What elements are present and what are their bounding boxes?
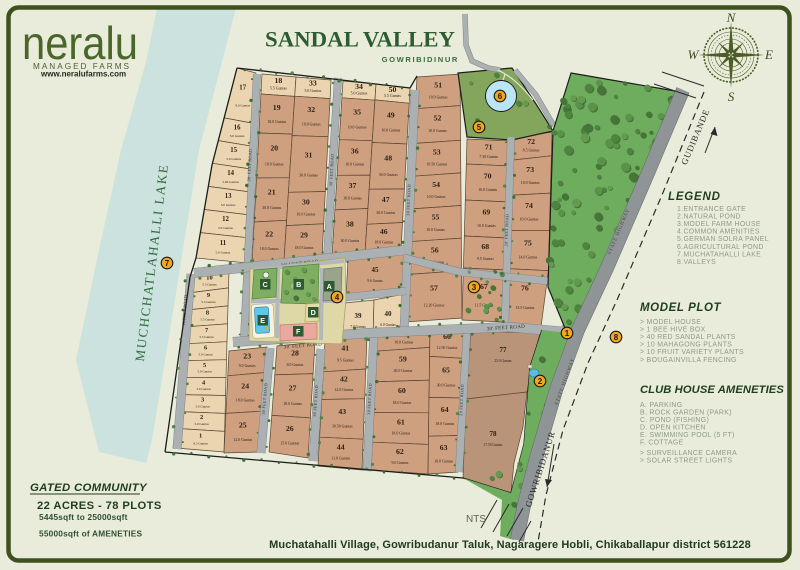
svg-text:75: 75	[524, 238, 532, 247]
svg-text:SANDAL VALLEY: SANDAL VALLEY	[265, 27, 455, 52]
svg-text:46: 46	[380, 227, 388, 236]
svg-text:E: E	[260, 316, 265, 325]
svg-text:64: 64	[441, 405, 449, 414]
svg-text:Muchatahalli Village, Gowribud: Muchatahalli Village, Gowribudanur Taluk…	[269, 539, 751, 551]
svg-text:34: 34	[355, 82, 363, 91]
svg-text:13.5 Guntas: 13.5 Guntas	[515, 306, 534, 310]
svg-text:10.0 Guntas: 10.0 Guntas	[427, 195, 446, 199]
svg-text:13: 13	[225, 193, 232, 200]
svg-text:26: 26	[286, 424, 294, 433]
svg-text:C. POND (FISHING): C. POND (FISHING)	[640, 417, 709, 424]
svg-text:18.50 Guntas: 18.50 Guntas	[426, 162, 447, 166]
svg-text:> 10 MAHAGONG PLANTS: > 10 MAHAGONG PLANTS	[640, 342, 732, 349]
svg-text:3.MODEL FARM HOUSE: 3.MODEL FARM HOUSE	[677, 221, 761, 228]
svg-text:37: 37	[349, 181, 357, 190]
svg-text:W: W	[688, 47, 700, 62]
svg-text:5.0 Guntas: 5.0 Guntas	[226, 157, 241, 161]
svg-text:5445sqft to 25000sqft: 5445sqft to 25000sqft	[39, 512, 128, 522]
svg-text:30.0 Guntas: 30.0 Guntas	[379, 173, 398, 177]
svg-text:24: 24	[241, 382, 249, 391]
svg-text:N: N	[726, 10, 737, 25]
svg-text:5.0 Guntas: 5.0 Guntas	[218, 226, 233, 230]
svg-text:29: 29	[300, 231, 308, 240]
svg-text:2: 2	[538, 377, 543, 386]
svg-text:6.5 Guntas: 6.5 Guntas	[193, 441, 208, 445]
svg-text:5.0 Guntas: 5.0 Guntas	[351, 91, 368, 95]
svg-text:44: 44	[337, 443, 345, 452]
svg-text:3: 3	[472, 283, 477, 292]
svg-text:5.0 Guntas: 5.0 Guntas	[216, 250, 231, 254]
svg-text:2: 2	[200, 414, 203, 421]
svg-text:72: 72	[527, 137, 535, 146]
svg-text:5.0 Guntas: 5.0 Guntas	[221, 203, 236, 207]
svg-text:> SOLAR STREET LIGHTS: > SOLAR STREET LIGHTS	[640, 458, 732, 465]
svg-text:6.AGRICULTURAL POND: 6.AGRICULTURAL POND	[677, 244, 764, 251]
svg-text:49: 49	[387, 110, 395, 119]
svg-text:18.0 Guntas: 18.0 Guntas	[374, 241, 393, 245]
svg-text:55: 55	[432, 213, 440, 222]
svg-text:10.0 Guntas: 10.0 Guntas	[477, 224, 496, 228]
svg-text:5.0 Guntas: 5.0 Guntas	[304, 89, 321, 93]
svg-text:8.0 Guntas: 8.0 Guntas	[287, 363, 304, 367]
svg-text:E: E	[764, 47, 773, 62]
svg-text:42: 42	[340, 374, 348, 383]
svg-text:18.0 Guntas: 18.0 Guntas	[343, 197, 362, 201]
svg-text:5.0 Guntas: 5.0 Guntas	[197, 370, 212, 374]
svg-text:10.0 Guntas: 10.0 Guntas	[302, 122, 321, 126]
svg-text:4: 4	[335, 293, 340, 302]
svg-text:9.6 Guntas: 9.6 Guntas	[367, 279, 383, 283]
svg-text:10.0 Guntas: 10.0 Guntas	[520, 217, 539, 221]
svg-text:9: 9	[207, 292, 210, 299]
svg-text:11.0 Guntas: 11.0 Guntas	[331, 457, 350, 461]
svg-text:9.5 Guntas: 9.5 Guntas	[477, 257, 494, 261]
svg-text:GOWRIBIDINUR: GOWRIBIDINUR	[382, 55, 459, 64]
svg-text:25.0 Guntas: 25.0 Guntas	[494, 359, 512, 363]
svg-text:MODEL PLOT: MODEL PLOT	[640, 302, 722, 314]
svg-text:5.00 Guntas: 5.00 Guntas	[222, 180, 239, 184]
svg-text:7.30 Guntas: 7.30 Guntas	[479, 155, 498, 159]
svg-text:71: 71	[485, 143, 493, 152]
svg-text:10.0 Guntas: 10.0 Guntas	[428, 129, 447, 133]
svg-text:62: 62	[396, 447, 404, 456]
svg-text:B: B	[296, 280, 301, 289]
svg-text:2.NATURAL POND: 2.NATURAL POND	[677, 214, 741, 221]
svg-text:7.0 Guntas: 7.0 Guntas	[350, 325, 366, 329]
svg-text:9.5 Guntas: 9.5 Guntas	[337, 358, 354, 362]
svg-text:10.0 Guntas: 10.0 Guntas	[429, 95, 448, 99]
svg-text:8: 8	[614, 333, 619, 342]
svg-text:5: 5	[477, 123, 482, 132]
svg-text:21: 21	[268, 187, 276, 196]
svg-text:19: 19	[273, 103, 281, 112]
svg-text:10.0 Guntas: 10.0 Guntas	[348, 126, 367, 130]
svg-text:33: 33	[309, 79, 317, 88]
svg-text:18.0 Guntas: 18.0 Guntas	[435, 422, 454, 426]
svg-text:15: 15	[230, 147, 237, 154]
svg-text:GATED COMMUNITY: GATED COMMUNITY	[30, 482, 148, 494]
svg-text:18.0 Guntas: 18.0 Guntas	[392, 401, 411, 405]
svg-text:77: 77	[500, 346, 508, 354]
svg-text:61: 61	[397, 417, 405, 426]
svg-text:12: 12	[222, 216, 229, 223]
svg-text:68: 68	[481, 242, 489, 251]
svg-text:5.5 Guntas: 5.5 Guntas	[201, 300, 216, 304]
svg-text:12.20 Guntas: 12.20 Guntas	[424, 304, 445, 308]
svg-text:5: 5	[203, 362, 206, 369]
svg-text:> 10 FRUIT VARIETY PLANTS: > 10 FRUIT VARIETY PLANTS	[640, 349, 744, 356]
svg-text:17: 17	[239, 85, 246, 92]
svg-text:18.0 Guntas: 18.0 Guntas	[283, 402, 302, 406]
svg-text:18.0 Guntas: 18.0 Guntas	[295, 246, 314, 250]
svg-text:40: 40	[385, 310, 393, 318]
svg-text:> 1 BEE HIVE BOX: > 1 BEE HIVE BOX	[640, 327, 706, 334]
svg-text:B. ROCK GARDEN (PARK): B. ROCK GARDEN (PARK)	[640, 410, 732, 417]
svg-text:30.0 Guntas: 30.0 Guntas	[340, 239, 359, 243]
svg-text:18.0 Guntas: 18.0 Guntas	[236, 399, 255, 403]
svg-text:25: 25	[239, 421, 247, 430]
svg-text:39: 39	[355, 312, 363, 320]
svg-text:16: 16	[234, 124, 241, 131]
svg-text:> MODEL HOUSE: > MODEL HOUSE	[640, 319, 701, 326]
svg-text:D: D	[311, 308, 316, 317]
svg-text:10.0 Guntas: 10.0 Guntas	[381, 129, 400, 133]
svg-text:F. COTTAGE: F. COTTAGE	[640, 440, 684, 447]
svg-text:10.0 Guntas: 10.0 Guntas	[434, 460, 453, 464]
svg-text:10.0 Guntas: 10.0 Guntas	[394, 341, 413, 345]
svg-text:57: 57	[430, 284, 438, 293]
svg-text:5.0 Guntas: 5.0 Guntas	[198, 352, 213, 356]
svg-text:9.0 Guntas: 9.0 Guntas	[391, 461, 408, 465]
svg-text:14.0 Guntas: 14.0 Guntas	[518, 256, 537, 260]
svg-text:55000sqft of AMENETIES: 55000sqft of AMENETIES	[39, 529, 142, 539]
svg-text:30.0 Guntas: 30.0 Guntas	[299, 173, 318, 177]
svg-text:A: A	[327, 282, 332, 291]
svg-text:1.ENTRANCE GATE: 1.ENTRANCE GATE	[677, 206, 746, 213]
svg-text:8.5 Guntas: 8.5 Guntas	[523, 149, 540, 153]
svg-text:NTS: NTS	[466, 514, 486, 525]
svg-text:63: 63	[440, 443, 448, 452]
svg-text:30: 30	[302, 197, 310, 206]
svg-text:38: 38	[346, 219, 354, 228]
svg-text:18.0 Guntas: 18.0 Guntas	[260, 247, 279, 251]
svg-text:12.0 Guntas: 12.0 Guntas	[334, 388, 353, 392]
svg-text:6.0 Guntas: 6.0 Guntas	[380, 323, 396, 327]
svg-text:F: F	[296, 327, 301, 336]
svg-text:11: 11	[220, 240, 227, 247]
svg-text:5.5 Guntas: 5.5 Guntas	[384, 94, 401, 98]
svg-text:> 40 RED SANDAL PLANTS: > 40 RED SANDAL PLANTS	[640, 334, 736, 341]
svg-text:1: 1	[199, 433, 202, 440]
svg-text:30.50 Guntas: 30.50 Guntas	[332, 424, 353, 428]
svg-text:12.0 Guntas: 12.0 Guntas	[233, 438, 252, 442]
svg-text:LEGEND: LEGEND	[668, 191, 721, 203]
svg-text:S: S	[728, 89, 735, 104]
svg-text:48: 48	[384, 154, 392, 163]
svg-text:69: 69	[483, 208, 491, 217]
svg-text:51: 51	[434, 81, 442, 90]
svg-text:20: 20	[270, 143, 278, 152]
svg-text:65: 65	[442, 366, 450, 375]
svg-text:E. SWIMMING POOL (5 FT): E. SWIMMING POOL (5 FT)	[640, 432, 735, 439]
svg-text:23: 23	[243, 352, 251, 361]
svg-text:59: 59	[399, 354, 407, 363]
svg-text:10.0 Guntas: 10.0 Guntas	[267, 120, 286, 124]
svg-text:22 ACRES - 78 PLOTS: 22 ACRES - 78 PLOTS	[37, 500, 162, 512]
svg-text:> SURVEILLANCE CAMERA: > SURVEILLANCE CAMERA	[640, 450, 737, 457]
svg-text:5.0 Guntas: 5.0 Guntas	[194, 422, 209, 426]
svg-text:18.0 Guntas: 18.0 Guntas	[265, 162, 284, 166]
svg-text:4.COMMON AMENITIES: 4.COMMON AMENITIES	[677, 229, 760, 236]
svg-text:73: 73	[526, 165, 534, 174]
svg-text:78: 78	[490, 430, 498, 438]
svg-text:30.0 Guntas: 30.0 Guntas	[393, 369, 412, 373]
svg-text:47: 47	[382, 195, 390, 204]
svg-text:10.0 Guntas: 10.0 Guntas	[426, 228, 445, 232]
svg-text:30.0 Guntas: 30.0 Guntas	[262, 206, 281, 210]
svg-text:60: 60	[398, 386, 406, 395]
svg-text:43: 43	[338, 407, 346, 416]
svg-text:5.5 Guntas: 5.5 Guntas	[270, 87, 287, 91]
svg-text:18.0 Guntas: 18.0 Guntas	[391, 432, 410, 436]
svg-text:22: 22	[265, 230, 273, 239]
svg-text:7: 7	[165, 259, 170, 268]
svg-text:9.0 Guntas: 9.0 Guntas	[235, 104, 250, 108]
svg-text:53: 53	[433, 147, 441, 156]
svg-text:74: 74	[525, 201, 533, 210]
svg-text:6: 6	[498, 92, 503, 101]
svg-text:5.0 Guntas: 5.0 Guntas	[195, 405, 210, 409]
svg-text:5.5 Guntas: 5.5 Guntas	[199, 335, 214, 339]
svg-text:1: 1	[565, 329, 570, 338]
svg-text:54: 54	[432, 180, 440, 189]
svg-text:52: 52	[434, 113, 442, 122]
svg-text:10.0 Guntas: 10.0 Guntas	[478, 188, 497, 192]
svg-text:10.0 Guntas: 10.0 Guntas	[296, 213, 315, 217]
svg-text:15.0 Guntas: 15.0 Guntas	[280, 441, 299, 445]
svg-text:14: 14	[227, 170, 234, 177]
svg-text:45: 45	[372, 266, 380, 274]
svg-text:41: 41	[341, 344, 349, 353]
svg-text:5.5 Guntas: 5.5 Guntas	[202, 283, 217, 287]
svg-text:C: C	[263, 280, 268, 289]
svg-text:17.50 Guntas: 17.50 Guntas	[483, 443, 503, 447]
svg-text:CLUB HOUSE AMENETIES: CLUB HOUSE AMENETIES	[640, 384, 784, 396]
svg-text:10.0 Guntas: 10.0 Guntas	[521, 181, 540, 185]
svg-text:5.0 Guntas: 5.0 Guntas	[196, 387, 211, 391]
svg-text:3: 3	[201, 397, 204, 404]
svg-text:76: 76	[521, 283, 529, 292]
svg-text:www.neralufarms.com: www.neralufarms.com	[40, 70, 126, 79]
svg-text:8: 8	[206, 310, 209, 317]
svg-text:> BOUGAINVILLA FENCING: > BOUGAINVILLA FENCING	[640, 357, 737, 364]
svg-text:30.0 Guntas: 30.0 Guntas	[376, 211, 395, 215]
svg-text:5.5 Guntas: 5.5 Guntas	[200, 317, 215, 321]
svg-text:A. PARKING: A. PARKING	[640, 402, 682, 409]
svg-text:9.0 Guntas: 9.0 Guntas	[239, 364, 256, 368]
svg-text:36: 36	[351, 147, 359, 156]
svg-text:5.GERMAN SOLRA PANEL: 5.GERMAN SOLRA PANEL	[677, 236, 769, 243]
svg-text:12.50 Guntas: 12.50 Guntas	[437, 346, 458, 350]
svg-text:32: 32	[307, 105, 315, 114]
svg-text:30.0 Guntas: 30.0 Guntas	[437, 383, 456, 387]
svg-text:8.VALLEYS: 8.VALLEYS	[677, 259, 716, 266]
svg-text:31: 31	[305, 150, 313, 159]
svg-text:27: 27	[289, 383, 297, 392]
svg-text:35: 35	[353, 108, 361, 117]
svg-text:10.0 Guntas: 10.0 Guntas	[345, 162, 364, 166]
svg-text:5.0 Guntas: 5.0 Guntas	[230, 134, 245, 138]
svg-text:70: 70	[484, 172, 492, 181]
svg-text:D. OPEN KITCHEN: D. OPEN KITCHEN	[640, 425, 706, 432]
svg-text:7.MUCHATAHALLI LAKE: 7.MUCHATAHALLI LAKE	[677, 251, 761, 258]
svg-text:56: 56	[431, 245, 439, 254]
svg-text:18: 18	[275, 76, 283, 85]
